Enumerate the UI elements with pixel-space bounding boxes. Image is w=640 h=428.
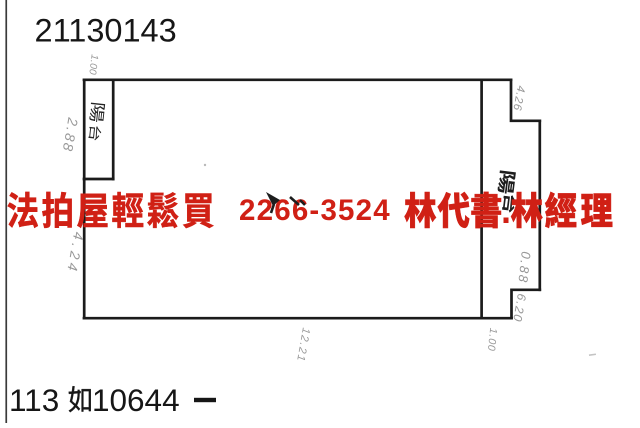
svg-text:10644: 10644 (92, 382, 180, 418)
svg-text:113: 113 (9, 382, 59, 418)
svg-text:21130143: 21130143 (35, 13, 177, 49)
svg-text:2266-3524: 2266-3524 (239, 194, 391, 227)
svg-text:1.00: 1.00 (485, 327, 499, 352)
